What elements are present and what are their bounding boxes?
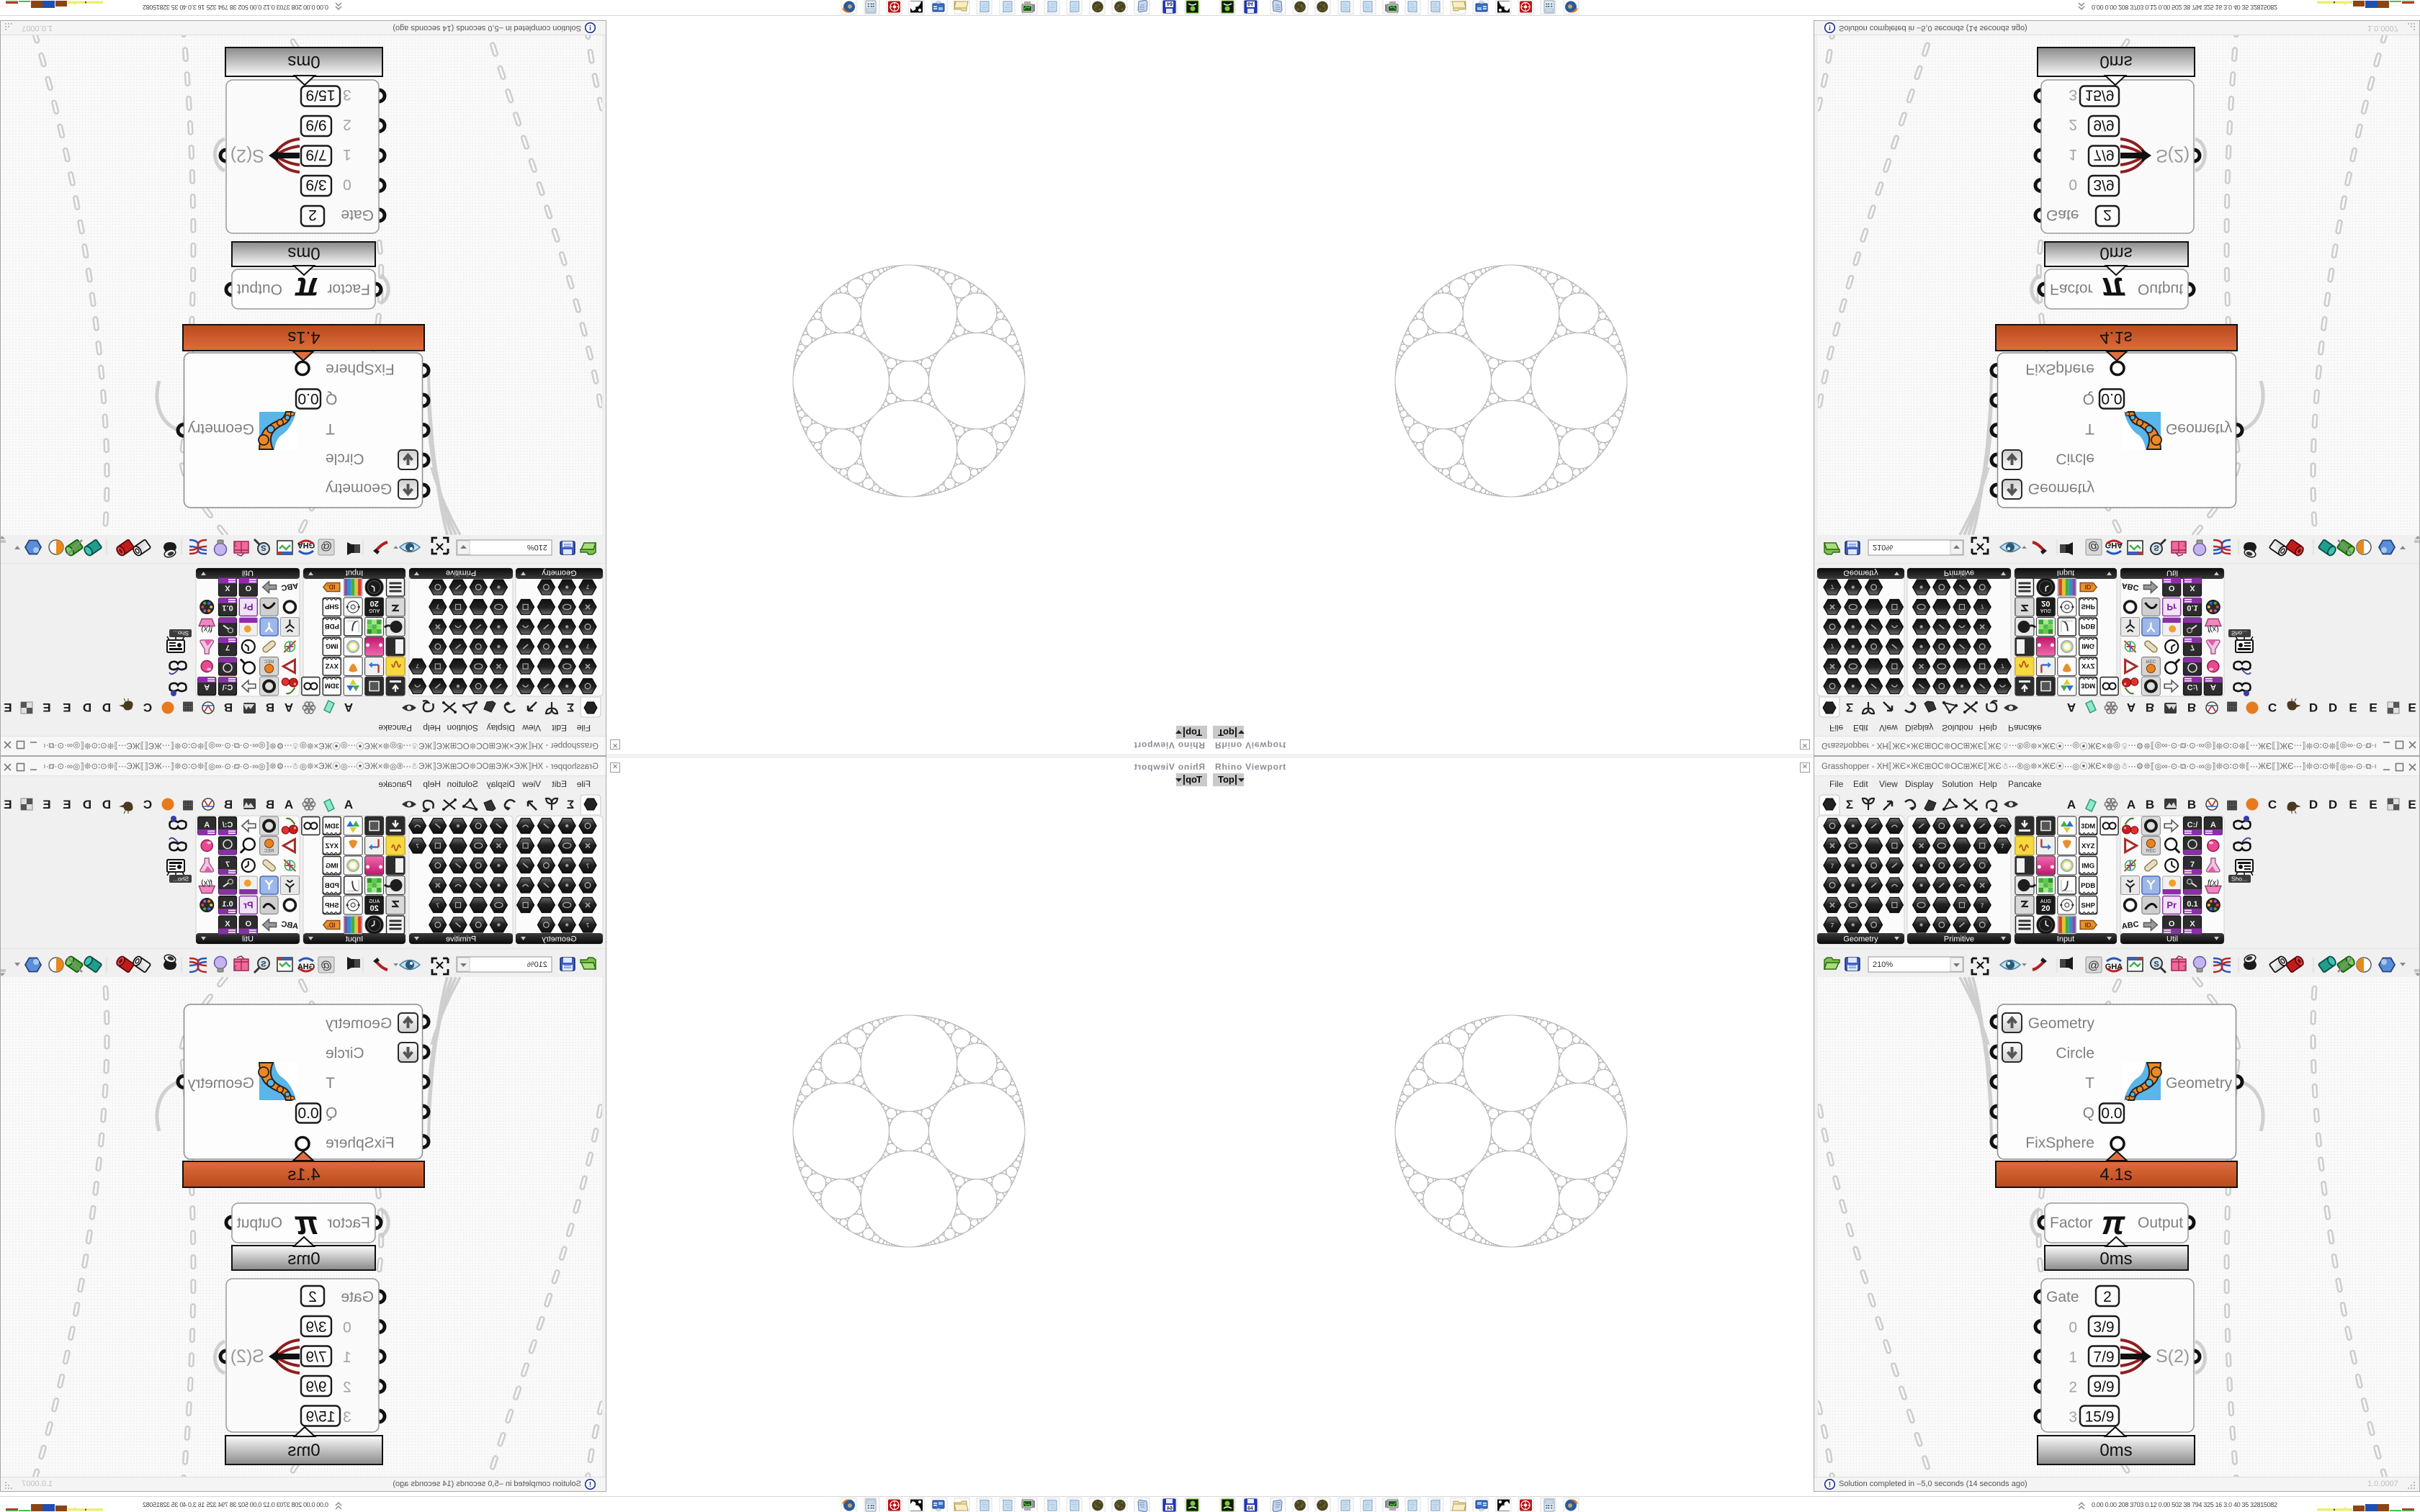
svg-text:3: 3 — [343, 86, 351, 103]
svg-text:Geometry: Geometry — [2166, 1075, 2233, 1092]
svg-text:O: O — [2169, 920, 2175, 929]
svg-text:15/9: 15/9 — [306, 1409, 336, 1426]
svg-text:7: 7 — [2190, 860, 2195, 869]
svg-text:D: D — [2309, 701, 2318, 714]
svg-text:7: 7 — [586, 643, 589, 649]
svg-text:2: 2 — [343, 1380, 351, 1396]
svg-text:E: E — [2369, 798, 2377, 811]
svg-text:0.1: 0.1 — [222, 900, 233, 909]
svg-text:0.00 0.00 208 3703 0.12 0.00: 0.00 0.00 208 3703 0.12 0.00 502 38 794 … — [2092, 1501, 2277, 1508]
svg-text:O: O — [2169, 584, 2175, 593]
svg-text:0ms: 0ms — [2099, 52, 2132, 71]
svg-text:B: B — [266, 701, 274, 714]
svg-text:0: 0 — [2069, 1320, 2077, 1336]
svg-text:Output: Output — [2138, 281, 2183, 297]
svg-text:Primitive: Primitive — [1944, 569, 1974, 577]
svg-text:7: 7 — [436, 603, 439, 610]
svg-text:FixSphere: FixSphere — [2025, 361, 2094, 377]
svg-text:ID.: ID. — [2084, 583, 2093, 590]
svg-text:T: T — [326, 1075, 335, 1092]
svg-text:3DM: 3DM — [2081, 682, 2095, 690]
svg-text:FixSphere: FixSphere — [2025, 1135, 2094, 1151]
svg-text:S(2): S(2) — [230, 145, 264, 166]
svg-text:B: B — [224, 701, 233, 714]
svg-text:Σ: Σ — [567, 701, 574, 714]
svg-text:D: D — [83, 798, 91, 811]
svg-text:Circle: Circle — [326, 451, 364, 467]
svg-text:Factor: Factor — [327, 281, 370, 297]
svg-text:210%: 210% — [527, 960, 547, 969]
svg-text:Gate: Gate — [341, 207, 374, 223]
svg-text:SHP: SHP — [2081, 603, 2095, 611]
svg-text:ID.: ID. — [327, 922, 336, 929]
svg-text:PDB: PDB — [325, 882, 339, 890]
svg-text:D: D — [2329, 701, 2337, 714]
svg-text:7: 7 — [586, 583, 589, 590]
svg-text:π: π — [2102, 271, 2126, 308]
svg-text:Geometry: Geometry — [2028, 480, 2095, 497]
svg-text:C: C — [2268, 701, 2277, 714]
svg-text:4.1s: 4.1s — [2099, 1165, 2132, 1184]
svg-text:Util: Util — [2166, 935, 2178, 944]
svg-text:C: C — [2268, 798, 2277, 811]
svg-text:!: ! — [1829, 1481, 1831, 1489]
svg-text:REC: REC — [264, 659, 274, 664]
svg-text:B: B — [2187, 798, 2196, 811]
svg-text:0.0: 0.0 — [2101, 390, 2122, 407]
svg-text:1: 1 — [343, 1349, 351, 1366]
svg-text:0.1: 0.1 — [222, 603, 233, 612]
svg-text:7: 7 — [1831, 863, 1834, 870]
svg-text:Input: Input — [2057, 935, 2074, 944]
svg-text:E: E — [2349, 798, 2357, 811]
svg-text:IMG: IMG — [2081, 863, 2094, 870]
svg-text:Primitive: Primitive — [446, 569, 476, 577]
svg-text:7: 7 — [225, 860, 230, 869]
svg-text:▦: ▦ — [182, 701, 194, 714]
svg-text:3: 3 — [2069, 1409, 2077, 1426]
svg-text:0: 0 — [343, 1320, 351, 1336]
svg-text:20: 20 — [2041, 599, 2050, 608]
svg-text:64: 64 — [1167, 1, 1173, 6]
svg-text:IMG: IMG — [326, 642, 339, 650]
svg-text:Pr: Pr — [2166, 602, 2177, 613]
svg-text:20: 20 — [369, 904, 378, 913]
svg-text:PDB: PDB — [2081, 622, 2095, 630]
svg-text:Output: Output — [237, 281, 282, 297]
svg-text:A: A — [2067, 798, 2076, 811]
svg-text:XYZ: XYZ — [2081, 842, 2095, 850]
svg-text:AUG: AUG — [369, 899, 380, 904]
svg-text:Q: Q — [326, 1105, 337, 1122]
svg-text:Geometry: Geometry — [1843, 569, 1878, 577]
svg-text:X: X — [225, 584, 230, 593]
svg-text:D: D — [2329, 798, 2337, 811]
svg-text:FixSphere: FixSphere — [326, 1135, 395, 1151]
svg-text:T: T — [326, 420, 335, 437]
svg-text:Q: Q — [2083, 391, 2094, 408]
svg-text:Factor: Factor — [2050, 281, 2093, 297]
svg-text:A: A — [284, 701, 293, 714]
svg-text:Σ: Σ — [1846, 701, 1853, 714]
svg-text:π: π — [2102, 1204, 2126, 1241]
svg-text:Sho...: Sho... — [173, 630, 189, 637]
svg-text:4.1s: 4.1s — [2099, 328, 2132, 347]
svg-text:Pr: Pr — [2166, 900, 2177, 911]
svg-text:A: A — [2210, 821, 2216, 829]
svg-text:1: 1 — [343, 146, 351, 163]
svg-text:7/9: 7/9 — [2093, 147, 2114, 163]
svg-text:Σ: Σ — [1846, 798, 1853, 811]
svg-text:@: @ — [321, 540, 332, 552]
svg-text:Sho...: Sho... — [2231, 630, 2247, 637]
svg-text:E: E — [2408, 701, 2416, 714]
svg-text:S: S — [2154, 544, 2159, 552]
svg-text:S(2): S(2) — [230, 1346, 264, 1367]
svg-text:IMG: IMG — [2081, 642, 2094, 650]
svg-text:f(x): f(x) — [201, 625, 212, 634]
svg-text:Input: Input — [346, 935, 363, 944]
svg-text:3: 3 — [343, 1409, 351, 1426]
svg-text:2: 2 — [2069, 117, 2077, 133]
svg-text:REC: REC — [2146, 659, 2156, 664]
svg-text:Util: Util — [242, 935, 254, 944]
svg-text:Factor: Factor — [327, 1215, 370, 1231]
svg-text:E: E — [63, 701, 71, 714]
svg-text:210%: 210% — [1873, 543, 1893, 552]
svg-text:7: 7 — [2001, 843, 2004, 850]
svg-text:3/9: 3/9 — [2093, 176, 2114, 193]
svg-text:0.0: 0.0 — [297, 390, 318, 407]
svg-text:Factor: Factor — [2050, 1215, 2093, 1231]
svg-text:!: ! — [589, 23, 591, 31]
svg-text:Gate: Gate — [341, 1289, 374, 1305]
svg-text:▦: ▦ — [2226, 798, 2238, 811]
svg-text:Geometry: Geometry — [1843, 935, 1878, 944]
svg-text:f(x): f(x) — [201, 879, 212, 888]
svg-text:E: E — [2408, 798, 2416, 811]
svg-text:Input: Input — [2057, 569, 2074, 577]
svg-text:XYZ: XYZ — [325, 842, 339, 850]
svg-text:Util: Util — [2166, 569, 2178, 577]
svg-text:64: 64 — [1167, 1506, 1173, 1511]
svg-text:SHP: SHP — [2081, 902, 2095, 910]
svg-text:20: 20 — [2041, 904, 2050, 913]
svg-text:Output: Output — [2138, 1215, 2183, 1231]
svg-text:A: A — [204, 821, 210, 829]
svg-text:15/9: 15/9 — [2085, 1409, 2115, 1426]
svg-text:0ms: 0ms — [2099, 243, 2132, 263]
svg-text:1: 1 — [2069, 1349, 2077, 1366]
svg-text:0ms: 0ms — [287, 52, 320, 71]
svg-text:1: 1 — [2069, 146, 2077, 163]
svg-text:A: A — [2067, 701, 2076, 714]
svg-text:S(2): S(2) — [2156, 1346, 2190, 1367]
svg-text:B: B — [224, 798, 233, 811]
svg-text:3/9: 3/9 — [2093, 1319, 2114, 1336]
svg-text:@: @ — [2088, 960, 2099, 972]
svg-text:3DM: 3DM — [325, 682, 339, 690]
svg-text:f(x): f(x) — [2208, 879, 2219, 888]
svg-text:7/9: 7/9 — [305, 147, 326, 163]
svg-text:C:/: C:/ — [223, 821, 233, 829]
svg-text:4.1s: 4.1s — [287, 328, 320, 347]
svg-text:REC: REC — [264, 849, 274, 854]
svg-text:7: 7 — [1831, 922, 1834, 929]
svg-text:Geometry: Geometry — [187, 420, 254, 437]
svg-text:0ms: 0ms — [2099, 1249, 2132, 1269]
svg-text:7: 7 — [2001, 662, 2004, 669]
svg-text:C:/: C:/ — [223, 683, 233, 691]
svg-text:9/9: 9/9 — [2093, 117, 2114, 133]
svg-text:0ms: 0ms — [287, 1441, 320, 1460]
svg-text:IMG: IMG — [326, 863, 339, 870]
svg-text:!: ! — [589, 1481, 591, 1489]
svg-text:210%: 210% — [527, 543, 547, 552]
svg-text:!: ! — [1829, 23, 1831, 31]
svg-text:X: X — [2190, 920, 2195, 929]
svg-text:3/9: 3/9 — [305, 1319, 326, 1336]
svg-text:X: X — [225, 920, 230, 929]
svg-text:0ms: 0ms — [2099, 1441, 2132, 1460]
svg-text:π: π — [294, 271, 318, 308]
svg-text:E: E — [42, 798, 50, 811]
svg-text:0: 0 — [343, 176, 351, 193]
svg-text:Primitive: Primitive — [1944, 935, 1974, 944]
svg-text:A: A — [344, 798, 353, 811]
svg-text:Geometry: Geometry — [187, 1075, 254, 1092]
svg-text:Gate: Gate — [2046, 1289, 2079, 1305]
svg-text:Input: Input — [346, 569, 363, 577]
svg-text:ID.: ID. — [2084, 922, 2093, 929]
svg-text:Circle: Circle — [2056, 1045, 2094, 1062]
svg-text:▦: ▦ — [2226, 701, 2238, 714]
svg-text:2: 2 — [2103, 1289, 2112, 1305]
svg-text:7: 7 — [1981, 603, 1984, 610]
svg-text:Geometry: Geometry — [2166, 420, 2233, 437]
svg-text:S: S — [261, 960, 266, 969]
svg-text:▦: ▦ — [182, 798, 194, 811]
svg-text:S: S — [261, 544, 266, 552]
svg-text:PDB: PDB — [2081, 882, 2095, 890]
svg-text:15/9: 15/9 — [2085, 87, 2115, 104]
svg-text:20: 20 — [369, 599, 378, 608]
svg-text:D: D — [102, 701, 111, 714]
svg-text:ID.: ID. — [327, 583, 336, 590]
svg-text:REC: REC — [2146, 849, 2156, 854]
svg-text:E: E — [2349, 701, 2357, 714]
svg-text:7: 7 — [586, 922, 589, 929]
svg-text:3/9: 3/9 — [305, 176, 326, 193]
svg-text:0ms: 0ms — [287, 243, 320, 263]
svg-text:Circle: Circle — [2056, 451, 2094, 467]
svg-text:A: A — [2127, 701, 2136, 714]
svg-text:7: 7 — [1831, 583, 1834, 590]
svg-text:A: A — [2127, 798, 2136, 811]
svg-text:E: E — [63, 798, 71, 811]
svg-text:15/9: 15/9 — [306, 87, 336, 104]
svg-text:Q: Q — [326, 391, 337, 408]
svg-text:SHP: SHP — [324, 902, 339, 910]
svg-text:Util: Util — [242, 569, 254, 577]
svg-text:FixSphere: FixSphere — [326, 361, 395, 377]
svg-text:7: 7 — [1831, 643, 1834, 649]
svg-text:64: 64 — [1247, 1506, 1253, 1511]
svg-text:9/9: 9/9 — [305, 117, 326, 133]
svg-text:C:/: C:/ — [2187, 683, 2198, 691]
svg-text:2: 2 — [2069, 1380, 2077, 1396]
svg-text:Σ: Σ — [567, 798, 574, 811]
svg-text:A: A — [204, 683, 210, 691]
svg-text:D: D — [102, 798, 111, 811]
svg-text:?: ? — [233, 965, 237, 971]
svg-text:0.00 0.00 208 3703 0.12 0.00: 0.00 0.00 208 3703 0.12 0.00 502 38 794 … — [143, 1501, 328, 1508]
svg-text:Sho...: Sho... — [2231, 876, 2247, 883]
svg-text:0.00 0.00 208 3703 0.12 0.00: 0.00 0.00 208 3703 0.12 0.00 502 38 794 … — [2092, 4, 2277, 11]
svg-text:Pr: Pr — [243, 900, 254, 911]
svg-text:0.00 0.00 208 3703 0.12 0.00: 0.00 0.00 208 3703 0.12 0.00 502 38 794 … — [143, 4, 328, 11]
svg-text:Gate: Gate — [2046, 207, 2079, 223]
svg-text:?: ? — [233, 541, 237, 547]
svg-text:Geometry: Geometry — [542, 569, 577, 577]
svg-text:0: 0 — [2069, 176, 2077, 193]
svg-text:A: A — [284, 798, 293, 811]
svg-text:2: 2 — [308, 1289, 317, 1305]
svg-text:0.1: 0.1 — [2187, 900, 2197, 909]
svg-text:A: A — [344, 701, 353, 714]
svg-text:9/9: 9/9 — [305, 1379, 326, 1395]
svg-text:X: X — [2190, 584, 2195, 593]
svg-text:Output: Output — [237, 1215, 282, 1231]
svg-text:2: 2 — [308, 207, 317, 223]
svg-text:64: 64 — [1247, 1, 1253, 6]
svg-text:E: E — [2369, 701, 2377, 714]
svg-text:?: ? — [2183, 541, 2187, 547]
svg-text:AUG: AUG — [2040, 899, 2051, 904]
svg-text:E: E — [4, 701, 12, 714]
svg-text:Geometry: Geometry — [326, 480, 393, 497]
svg-text:PDB: PDB — [325, 622, 339, 630]
svg-text:O: O — [245, 584, 251, 593]
svg-text:Q: Q — [2083, 1105, 2094, 1122]
svg-text:210%: 210% — [1873, 960, 1893, 969]
svg-text:4.1s: 4.1s — [287, 1165, 320, 1184]
svg-text:7: 7 — [225, 643, 230, 652]
svg-text:B: B — [266, 798, 274, 811]
svg-text:C: C — [143, 798, 152, 811]
svg-text:7: 7 — [2190, 643, 2195, 652]
svg-text:7/9: 7/9 — [305, 1349, 326, 1366]
svg-text:T: T — [2085, 420, 2094, 437]
svg-text:0.1: 0.1 — [2187, 603, 2197, 612]
svg-text:Geometry: Geometry — [542, 935, 577, 944]
svg-text:7/9: 7/9 — [2093, 1349, 2114, 1366]
svg-text:7: 7 — [586, 863, 589, 870]
svg-text:7: 7 — [416, 843, 419, 850]
svg-text:π: π — [294, 1204, 318, 1241]
svg-text:@: @ — [2088, 540, 2099, 552]
svg-text:0.0: 0.0 — [2101, 1105, 2122, 1122]
svg-text:?: ? — [2183, 965, 2187, 971]
svg-text:E: E — [42, 701, 50, 714]
svg-text:7: 7 — [1981, 903, 1984, 909]
svg-text:0.0: 0.0 — [297, 1105, 318, 1122]
svg-text:A: A — [2210, 683, 2216, 691]
svg-text:7: 7 — [416, 662, 419, 669]
svg-text:Sho...: Sho... — [173, 876, 189, 883]
svg-text:O: O — [245, 920, 251, 929]
svg-text:Primitive: Primitive — [446, 935, 476, 944]
svg-text:2: 2 — [343, 117, 351, 133]
svg-text:3: 3 — [2069, 86, 2077, 103]
svg-text:S(2): S(2) — [2156, 145, 2190, 166]
svg-text:SHP: SHP — [324, 603, 339, 611]
svg-text:E: E — [4, 798, 12, 811]
svg-text:D: D — [2309, 798, 2318, 811]
svg-text:D: D — [83, 701, 91, 714]
svg-text:B: B — [2146, 701, 2154, 714]
svg-text:T: T — [2085, 1075, 2094, 1092]
svg-text:3DM: 3DM — [2081, 823, 2095, 831]
svg-text:B: B — [2187, 701, 2196, 714]
svg-text:@: @ — [321, 960, 332, 972]
svg-text:0ms: 0ms — [287, 1249, 320, 1269]
svg-text:C: C — [143, 701, 152, 714]
svg-text:f(x): f(x) — [2208, 625, 2219, 634]
svg-text:B: B — [2146, 798, 2154, 811]
svg-text:3DM: 3DM — [325, 823, 339, 831]
svg-text:XYZ: XYZ — [325, 662, 339, 670]
svg-text:S: S — [2154, 960, 2159, 969]
svg-text:AUG: AUG — [369, 608, 380, 613]
svg-text:Circle: Circle — [326, 1045, 364, 1062]
svg-text:9/9: 9/9 — [2093, 1379, 2114, 1395]
svg-text:Pr: Pr — [243, 602, 254, 613]
svg-text:AUG: AUG — [2040, 608, 2051, 613]
svg-text:C:/: C:/ — [2187, 821, 2198, 829]
svg-text:2: 2 — [2103, 207, 2112, 223]
svg-text:7: 7 — [436, 903, 439, 909]
svg-text:XYZ: XYZ — [2081, 662, 2095, 670]
svg-text:Geometry: Geometry — [326, 1015, 393, 1032]
svg-text:Geometry: Geometry — [2028, 1015, 2095, 1032]
